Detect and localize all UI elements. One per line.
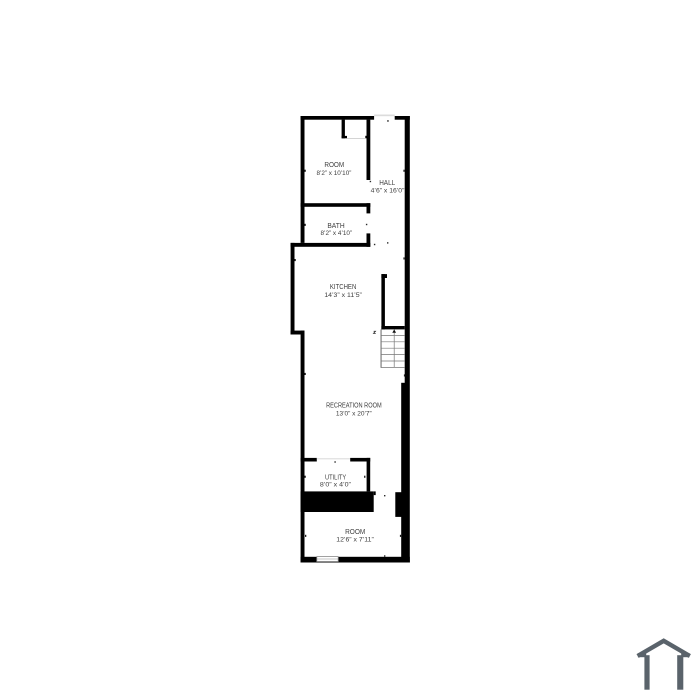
svg-text:12’6” x 7’11”: 12’6” x 7’11” [336,536,374,543]
svg-text:RECREATION ROOM: RECREATION ROOM [326,403,382,410]
svg-text:14’3” x 11’5”: 14’3” x 11’5” [324,292,362,299]
svg-text:8’2” x 10’10”: 8’2” x 10’10” [316,170,351,177]
svg-text:8’0” x 4’0”: 8’0” x 4’0” [320,482,351,489]
svg-text:ROOM: ROOM [324,162,344,169]
svg-text:KITCHEN: KITCHEN [330,284,356,291]
svg-text:UTILITY: UTILITY [325,475,346,482]
svg-text:4’6” x 16’0”: 4’6” x 16’0” [371,187,405,194]
svg-text:13’0” x 20’7”: 13’0” x 20’7” [336,410,372,417]
svg-text:HALL: HALL [379,180,395,187]
svg-text:ROOM: ROOM [345,529,365,536]
svg-text:8’2” x 4’10”: 8’2” x 4’10” [321,230,353,237]
